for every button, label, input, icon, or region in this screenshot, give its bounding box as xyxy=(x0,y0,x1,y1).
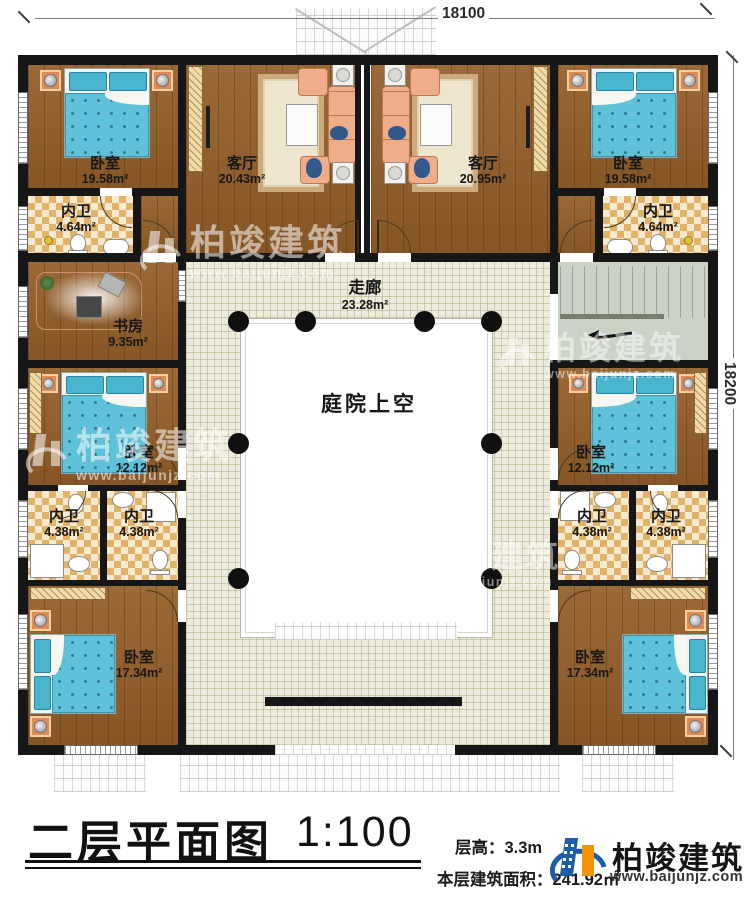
room-area: 4.38m² xyxy=(646,525,686,539)
floor-plan: 卧室 19.58m² 客厅 20.43m² 客厅 20.95m² 卧室 19.5… xyxy=(0,0,750,906)
wall xyxy=(550,65,558,253)
nightstand xyxy=(152,70,173,91)
wardrobe xyxy=(630,587,706,600)
room-area: 17.34m² xyxy=(116,666,163,680)
window xyxy=(18,286,28,338)
wardrobe xyxy=(30,587,106,600)
person-figure xyxy=(388,126,406,140)
room-label-bedroom-ml: 卧室 12.12m² xyxy=(116,444,163,476)
armchair xyxy=(410,68,440,96)
brand-logo-icon xyxy=(546,832,610,895)
plant xyxy=(40,276,54,290)
title-underline xyxy=(25,860,421,863)
room-area: 19.58m² xyxy=(605,172,652,186)
floor-height-label: 层高：3.3m xyxy=(455,834,542,858)
top-porch-slab xyxy=(296,8,436,55)
sofa xyxy=(328,86,356,164)
pillow xyxy=(34,639,51,673)
room-name: 卧室 xyxy=(116,444,163,461)
window xyxy=(18,614,28,690)
room-area: 20.95m² xyxy=(460,172,507,186)
window xyxy=(708,614,718,690)
side-table xyxy=(384,64,406,86)
stair-treads xyxy=(560,266,706,318)
entry-slab xyxy=(180,755,560,792)
room-label-bath-mr-1: 内卫 4.38m² xyxy=(572,508,612,540)
pillow xyxy=(636,376,674,394)
column xyxy=(228,433,249,454)
room-label-bedroom-tl: 卧室 19.58m² xyxy=(82,155,129,187)
nightstand xyxy=(30,610,51,631)
armchair xyxy=(298,68,328,96)
dimension-height-label: 18200 xyxy=(720,358,738,409)
wall xyxy=(178,302,186,448)
room-area: 4.64m² xyxy=(638,220,678,234)
pillow xyxy=(689,676,706,710)
toilet-tank xyxy=(562,570,582,575)
window xyxy=(18,92,28,164)
dimension-tick xyxy=(700,3,713,16)
toilet-tank xyxy=(150,570,170,575)
shower-tray xyxy=(30,544,64,578)
room-area: 4.38m² xyxy=(44,525,84,539)
wall xyxy=(178,65,186,253)
window xyxy=(18,500,28,558)
bed xyxy=(622,634,708,714)
room-name: 卧室 xyxy=(568,444,615,461)
wall xyxy=(18,745,275,755)
column xyxy=(481,568,502,589)
nightstand xyxy=(685,716,706,737)
nightstand xyxy=(30,716,51,737)
wall xyxy=(178,262,186,270)
bed xyxy=(30,634,116,714)
window xyxy=(18,388,28,450)
wall xyxy=(132,188,178,196)
room-label-living-tl: 客厅 20.43m² xyxy=(219,155,266,187)
dimension-width-label: 18100 xyxy=(438,5,489,23)
room-label-bath-tl: 内卫 4.64m² xyxy=(56,203,96,235)
room-label-bedroom-mr: 卧室 12.12m² xyxy=(568,444,615,476)
room-area: 12.12m² xyxy=(116,461,163,475)
floor-lamp xyxy=(684,236,693,245)
wardrobe xyxy=(29,372,42,434)
brand-url: www.baijunjz.com xyxy=(610,869,743,885)
courtyard-inner-line xyxy=(245,323,488,633)
window xyxy=(178,270,186,302)
pillow xyxy=(34,676,51,710)
room-label-bath-ml-2: 内卫 4.38m² xyxy=(119,508,159,540)
dimension-line-top xyxy=(35,18,715,19)
side-table xyxy=(384,162,406,184)
room-area: 4.38m² xyxy=(572,525,612,539)
coffee-table xyxy=(286,104,318,146)
room-name: 卧室 xyxy=(605,155,652,172)
wall xyxy=(364,65,370,262)
window xyxy=(708,388,718,450)
shower-tray xyxy=(672,544,706,578)
wall xyxy=(411,253,560,262)
window xyxy=(708,206,718,251)
room-name: 内卫 xyxy=(572,508,612,525)
wall xyxy=(593,253,718,262)
wall xyxy=(18,253,143,262)
room-label-study: 书房 9.35m² xyxy=(108,318,148,350)
room-area: 23.28m² xyxy=(342,298,389,312)
column xyxy=(228,568,249,589)
column xyxy=(481,433,502,454)
left-balcony-slab xyxy=(54,755,146,792)
person-figure xyxy=(330,126,348,140)
window xyxy=(582,745,656,755)
nightstand xyxy=(149,374,168,393)
tv-screen xyxy=(206,106,210,148)
nightstand xyxy=(679,70,700,91)
dimension-tick xyxy=(18,11,31,24)
room-label-bath-tr: 内卫 4.64m² xyxy=(638,203,678,235)
wall xyxy=(550,580,718,586)
room-name: 客厅 xyxy=(460,155,507,172)
wall xyxy=(678,485,718,491)
column xyxy=(481,311,502,332)
room-label-corridor: 走廊 23.28m² xyxy=(342,279,389,312)
nightstand xyxy=(685,610,706,631)
door-leaf xyxy=(357,220,359,253)
wall xyxy=(558,188,604,196)
pillow xyxy=(69,72,107,91)
room-label-bedroom-bl: 卧室 17.34m² xyxy=(116,649,163,681)
wall xyxy=(595,196,603,253)
side-table xyxy=(332,64,354,86)
room-label-bedroom-tr: 卧室 19.58m² xyxy=(605,155,652,187)
toilet xyxy=(152,550,168,570)
courtyard-steps-wall xyxy=(265,697,462,706)
room-name: 卧室 xyxy=(567,649,614,666)
column xyxy=(414,311,435,332)
room-label-living-tr: 客厅 20.95m² xyxy=(460,155,507,187)
wall xyxy=(636,188,718,196)
wall xyxy=(550,360,718,368)
wardrobe xyxy=(694,372,707,434)
room-area: 12.12m² xyxy=(568,461,615,475)
wall xyxy=(178,622,186,745)
wall xyxy=(100,491,107,580)
window xyxy=(708,92,718,164)
room-name: 书房 xyxy=(108,318,148,335)
room-name: 庭院上空 xyxy=(321,393,417,417)
room-name: 卧室 xyxy=(82,155,129,172)
wall xyxy=(550,360,558,448)
wall xyxy=(18,188,100,196)
sofa xyxy=(382,86,410,164)
stair-railing xyxy=(560,314,664,319)
room-name: 卧室 xyxy=(116,649,163,666)
bed xyxy=(64,68,150,158)
wall xyxy=(550,262,558,294)
pillow xyxy=(596,72,634,91)
wall xyxy=(18,580,186,586)
wall xyxy=(133,196,141,253)
right-balcony-slab xyxy=(582,755,674,792)
wall xyxy=(18,55,718,65)
nightstand xyxy=(40,70,61,91)
pillow xyxy=(636,72,674,91)
room-name: 内卫 xyxy=(56,203,96,220)
toilet xyxy=(564,550,580,570)
tv-cabinet xyxy=(188,66,203,172)
column xyxy=(295,311,316,332)
courtyard-steps-upper xyxy=(275,622,457,640)
dimension-tick xyxy=(726,51,739,64)
wall xyxy=(550,480,558,490)
room-name: 内卫 xyxy=(44,508,84,525)
person-figure xyxy=(306,158,322,178)
pillow xyxy=(106,376,144,394)
room-label-bath-ml-1: 内卫 4.38m² xyxy=(44,508,84,540)
window xyxy=(64,745,138,755)
scale-label: 1:100 xyxy=(296,808,414,857)
window xyxy=(708,500,718,558)
side-table xyxy=(332,162,354,184)
wall xyxy=(178,518,186,590)
pillow xyxy=(66,376,104,394)
room-area: 9.35m² xyxy=(108,335,148,349)
courtyard-void xyxy=(240,318,493,638)
column xyxy=(228,311,249,332)
room-name: 内卫 xyxy=(638,203,678,220)
person-figure xyxy=(414,158,430,178)
room-area: 4.64m² xyxy=(56,220,96,234)
sink xyxy=(646,556,668,572)
monitor xyxy=(76,296,102,318)
room-name: 内卫 xyxy=(646,508,686,525)
wall xyxy=(550,518,558,590)
wall xyxy=(18,485,58,491)
pillow xyxy=(109,72,147,91)
room-label-bedroom-br: 卧室 17.34m² xyxy=(567,649,614,681)
room-area: 20.43m² xyxy=(219,172,266,186)
room-label-bath-mr-2: 内卫 4.38m² xyxy=(646,508,686,540)
sink xyxy=(594,492,616,508)
title-underline xyxy=(25,867,421,869)
tv-screen xyxy=(526,106,530,148)
floor-lamp xyxy=(44,236,53,245)
wall xyxy=(550,622,558,745)
room-area: 4.38m² xyxy=(119,525,159,539)
pillow xyxy=(596,376,634,394)
pillow xyxy=(689,639,706,673)
window xyxy=(18,206,28,251)
room-name: 走廊 xyxy=(342,279,389,298)
nightstand xyxy=(569,374,588,393)
room-area: 19.58m² xyxy=(82,172,129,186)
wall xyxy=(176,253,325,262)
tv-cabinet xyxy=(533,66,548,172)
door-leaf xyxy=(377,220,379,253)
wall xyxy=(178,480,186,490)
coffee-table xyxy=(420,104,452,146)
bed xyxy=(591,68,677,158)
dimension-tick xyxy=(720,745,733,758)
room-area: 17.34m² xyxy=(567,666,614,680)
room-name: 客厅 xyxy=(219,155,266,172)
nightstand xyxy=(567,70,588,91)
room-label-courtyard: 庭院上空 xyxy=(321,393,417,417)
wall xyxy=(18,360,186,368)
sink xyxy=(68,556,90,572)
wall xyxy=(629,491,636,580)
sink xyxy=(112,492,134,508)
room-name: 内卫 xyxy=(119,508,159,525)
